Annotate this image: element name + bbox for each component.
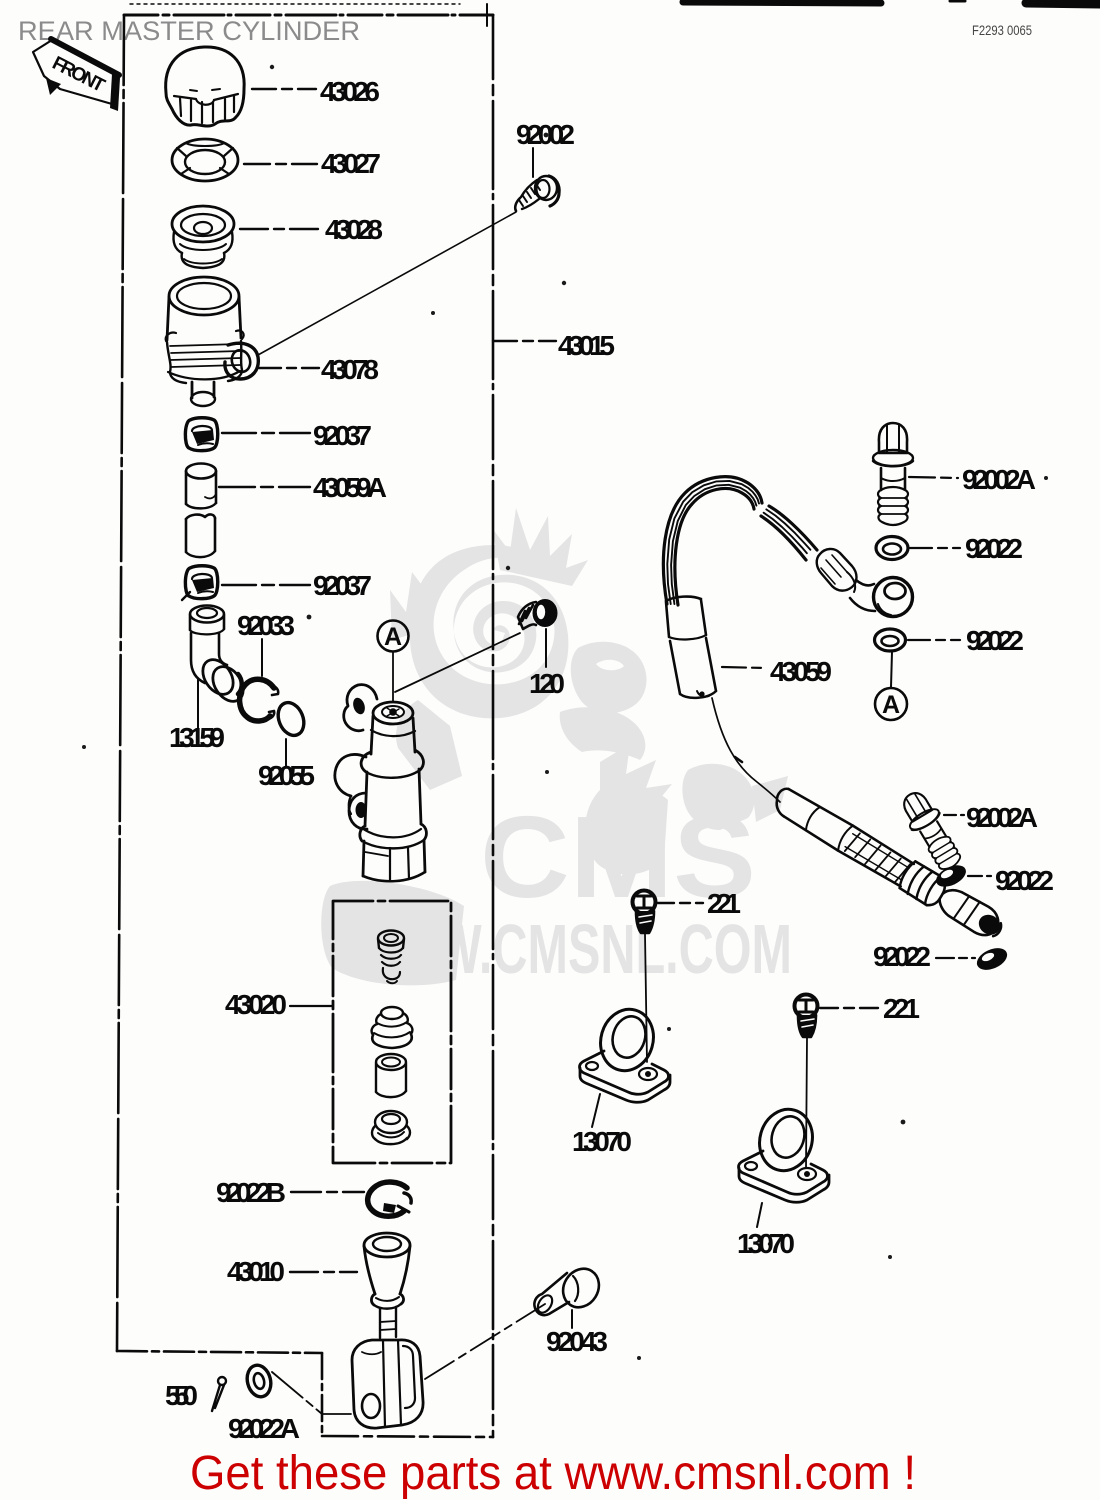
svg-text:13070: 13070	[737, 1228, 795, 1259]
svg-text:43020: 43020	[225, 989, 287, 1020]
svg-text:92002A: 92002A	[966, 802, 1038, 833]
svg-text:221: 221	[883, 993, 920, 1024]
svg-text:92022: 92022	[965, 533, 1023, 564]
svg-text:92037: 92037	[313, 420, 372, 451]
svg-text:92002A: 92002A	[962, 464, 1036, 495]
svg-text:43059A: 43059A	[313, 472, 387, 503]
svg-text:43027: 43027	[321, 148, 381, 179]
svg-text:92037: 92037	[313, 570, 372, 601]
svg-text:A: A	[882, 691, 900, 719]
svg-text:92022B: 92022B	[216, 1177, 286, 1208]
svg-text:92022A: 92022A	[228, 1413, 300, 1444]
svg-text:WWW.CMSNL.COM: WWW.CMSNL.COM	[344, 910, 792, 988]
svg-text:F2293 0065: F2293 0065	[972, 22, 1032, 38]
svg-text:REAR MASTER CYLINDER: REAR MASTER CYLINDER	[18, 16, 360, 46]
svg-text:92002: 92002	[516, 119, 575, 150]
svg-text:92022: 92022	[873, 941, 931, 972]
svg-text:92043: 92043	[546, 1326, 608, 1357]
svg-text:92033: 92033	[237, 610, 295, 641]
svg-text:43015: 43015	[558, 330, 615, 361]
svg-text:43028: 43028	[325, 214, 383, 245]
svg-text:43059: 43059	[770, 656, 832, 687]
svg-text:92022: 92022	[966, 625, 1024, 656]
svg-text:43078: 43078	[321, 354, 379, 385]
svg-text:120: 120	[529, 668, 565, 699]
svg-text:92022: 92022	[995, 865, 1054, 896]
svg-text:Get these parts at www.cmsnl.c: Get these parts at www.cmsnl.com !	[190, 1447, 916, 1500]
svg-text:A: A	[384, 623, 402, 651]
svg-text:221: 221	[707, 888, 741, 919]
svg-text:13070: 13070	[572, 1126, 632, 1157]
svg-text:43026: 43026	[320, 76, 380, 107]
svg-text:550: 550	[165, 1380, 198, 1411]
svg-text:43010: 43010	[227, 1256, 285, 1287]
